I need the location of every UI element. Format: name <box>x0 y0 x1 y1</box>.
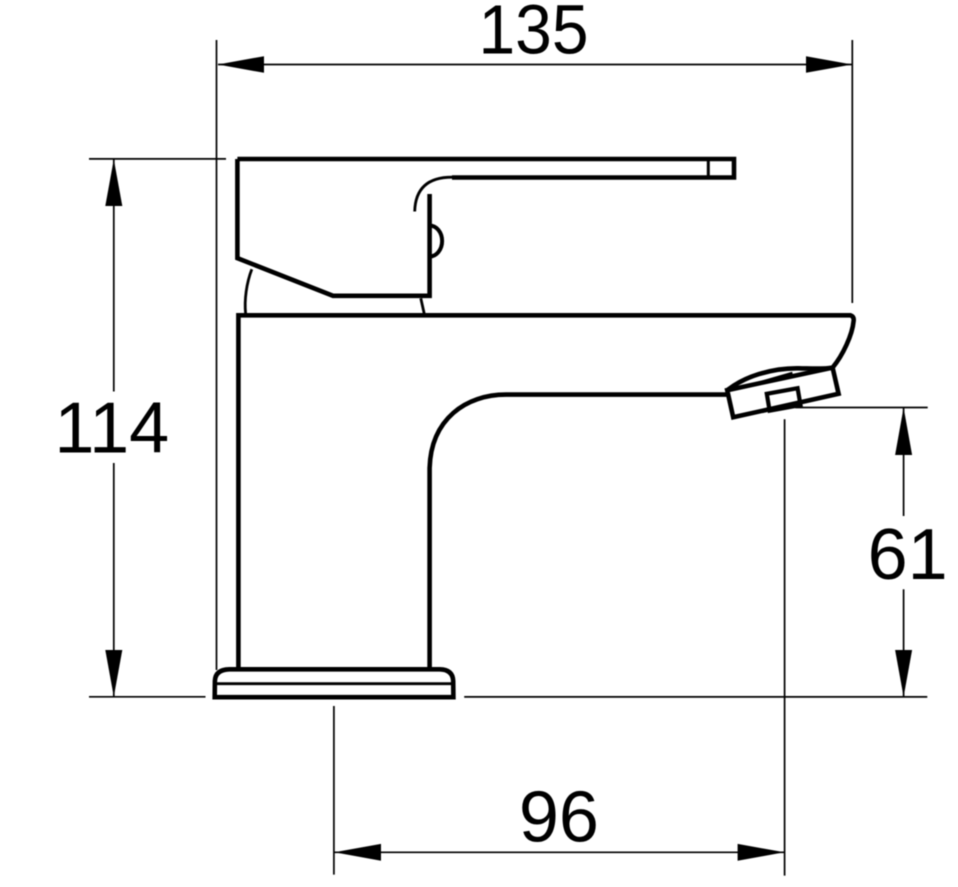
svg-text:61: 61 <box>868 515 948 595</box>
svg-text:135: 135 <box>479 0 589 69</box>
svg-text:114: 114 <box>54 389 169 469</box>
svg-text:96: 96 <box>519 778 599 858</box>
